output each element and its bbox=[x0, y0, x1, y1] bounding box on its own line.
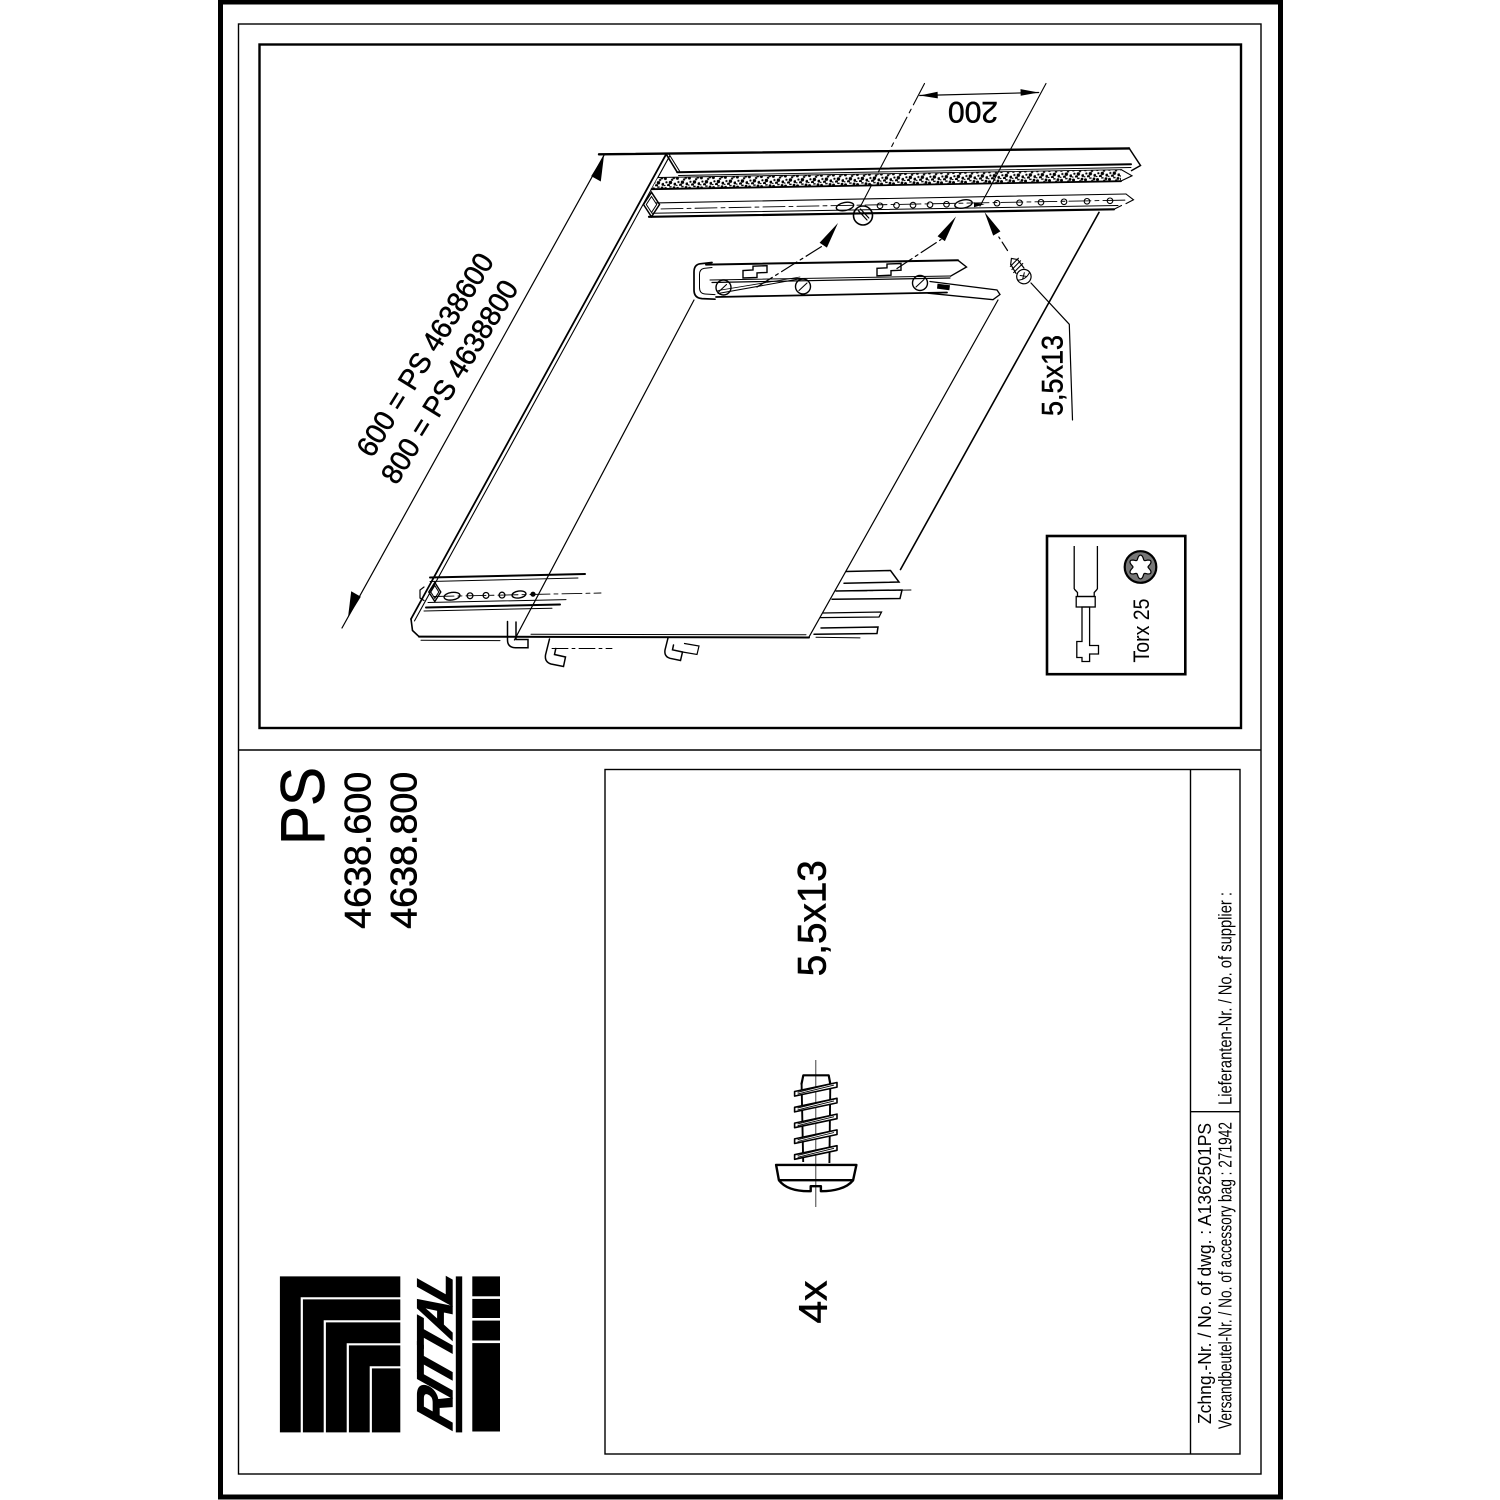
svg-text:PS: PS bbox=[269, 767, 338, 845]
svg-text:Versandbeutel-Nr. / No. of acc: Versandbeutel-Nr. / No. of accessory bag… bbox=[1215, 1122, 1236, 1429]
svg-text:4638.600: 4638.600 bbox=[337, 772, 378, 929]
svg-text:Torx 25: Torx 25 bbox=[1129, 599, 1154, 663]
svg-text:4638.800: 4638.800 bbox=[384, 772, 425, 929]
svg-text:Lieferanten-Nr. / No. of suppl: Lieferanten-Nr. / No. of supplier : bbox=[1215, 892, 1236, 1105]
svg-text:Zchng.-Nr. / No. of dwg. : A13: Zchng.-Nr. / No. of dwg. : A1362501PS bbox=[1194, 1123, 1215, 1424]
svg-text:RITTAL: RITTAL bbox=[406, 1259, 462, 1434]
svg-text:200: 200 bbox=[948, 95, 998, 128]
svg-text:5,5x13: 5,5x13 bbox=[1037, 335, 1070, 416]
svg-text:5,5x13: 5,5x13 bbox=[791, 860, 835, 976]
svg-text:4x: 4x bbox=[792, 1281, 836, 1324]
